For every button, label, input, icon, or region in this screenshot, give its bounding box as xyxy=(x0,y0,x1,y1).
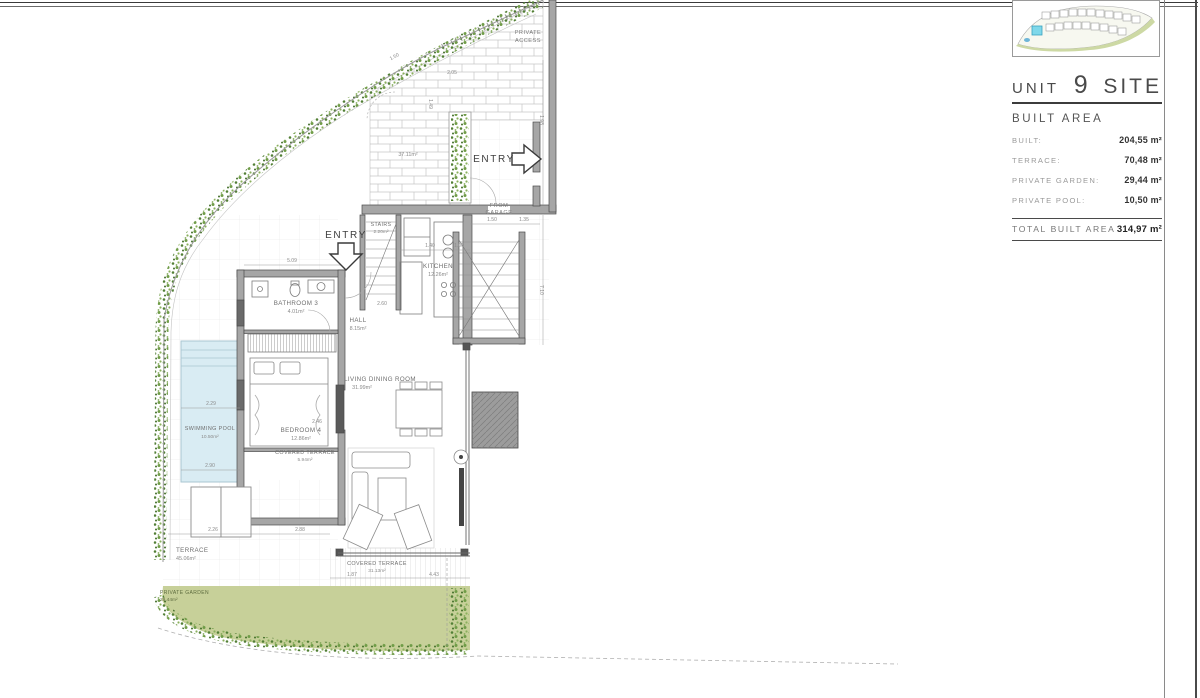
terrace-furniture xyxy=(191,487,251,537)
room-area-kitchen: 12.26m² xyxy=(428,272,448,278)
room-label-bathroom: BATHROOM 3 xyxy=(274,300,319,307)
room-label-hall: HALL xyxy=(349,317,366,324)
dim-5: 1.06 xyxy=(454,243,464,249)
row-value: 70,48 m² xyxy=(1124,155,1162,165)
dim-10: 2.26 xyxy=(208,527,218,533)
dim-14: 1.98 xyxy=(538,115,544,125)
room-area-covered-terrace-2: 31.13m² xyxy=(368,568,386,574)
room-label-bedroom: BEDROOM 4 xyxy=(281,427,322,434)
swimming-pool xyxy=(181,341,240,482)
room-label-pool: SWIMMING POOL xyxy=(185,426,235,432)
room-label-kitchen: KITCHEN xyxy=(423,263,453,270)
sheet-right-rule-outer xyxy=(1195,0,1197,698)
row-value: 10,50 m² xyxy=(1124,195,1162,205)
entry-label-main: ENTRY xyxy=(325,230,367,241)
total-value: 314,97 m² xyxy=(1117,224,1162,235)
drawing-sheet: PRIVATE ACCESS 37.11m² ENTRY ENTRY FROM … xyxy=(0,0,1200,698)
dim-12: 4.43 xyxy=(429,572,439,578)
site-thumbnail-unit9-highlight xyxy=(1032,26,1042,35)
site-thumbnail-drawing xyxy=(1012,0,1160,57)
from-garage-label2: GARAGE xyxy=(486,210,513,216)
dim-2: 1.49 xyxy=(427,99,433,109)
private-access-label2: ACCESS xyxy=(515,38,541,44)
total-label: TOTAL BUILT AREA xyxy=(1012,224,1115,234)
room-label-terrace: TERRACE xyxy=(176,547,208,554)
entry-label-garage: ENTRY xyxy=(473,154,515,165)
access-area-label: 37.11m² xyxy=(398,152,418,158)
unit-label: UNIT xyxy=(1012,80,1059,97)
legend-panel: UNIT 9 SITE BUILT AREA BUILT: 204,55 m² … xyxy=(1012,0,1162,241)
table-row: PRIVATE POOL: 10,50 m² xyxy=(1012,195,1162,205)
room-label-living: LIVING DINING ROOM xyxy=(344,376,416,383)
room-area-living: 31.99m² xyxy=(352,385,372,391)
room-label-covered-terrace-2: COVERED TERRACE xyxy=(347,561,407,567)
room-area-covered-terrace-1: 5.94m² xyxy=(298,457,313,463)
living-dining-furniture xyxy=(343,382,468,550)
site-location-thumbnail xyxy=(1012,0,1160,57)
room-area-pool: 10.50m² xyxy=(201,434,219,440)
built-area-table: BUILT: 204,55 m² TERRACE: 70,48 m² PRIVA… xyxy=(1012,135,1162,205)
row-label: TERRACE: xyxy=(1012,156,1061,165)
dim-7: 2.29 xyxy=(206,401,216,407)
from-garage-label: FROM xyxy=(490,203,508,209)
dim-13: 7.10 xyxy=(538,285,544,295)
dim-0: 1.50 xyxy=(389,52,401,62)
floor-plan-drawing: PRIVATE ACCESS 37.11m² ENTRY ENTRY FROM … xyxy=(0,0,1010,698)
built-area-heading: BUILT AREA xyxy=(1012,113,1162,125)
unit-title: UNIT 9 SITE xyxy=(1012,71,1162,104)
row-label: PRIVATE GARDEN: xyxy=(1012,176,1100,185)
bathroom-fittings xyxy=(252,280,334,297)
service-shaft xyxy=(472,392,518,448)
dim-3: 5.09 xyxy=(287,258,297,264)
wardrobe xyxy=(248,334,336,352)
dim-16: 1.50 xyxy=(487,217,497,223)
room-label-garden: PRIVATE GARDEN xyxy=(160,590,209,596)
sheet-right-rule-inner xyxy=(1164,0,1165,698)
site-thumbnail-pool-dot xyxy=(1024,38,1030,42)
private-access-label: PRIVATE xyxy=(515,30,542,36)
dim-9: 2.46 xyxy=(312,419,322,425)
dim-17: 2.88 xyxy=(295,527,305,533)
room-area-hall: 8.15m² xyxy=(350,326,367,332)
room-area-bathroom: 4.01m² xyxy=(288,309,305,315)
dim-11: 1.87 xyxy=(347,572,357,578)
row-value: 29,44 m² xyxy=(1124,175,1162,185)
unit-number: 9 xyxy=(1074,71,1089,100)
room-area-garden: 29.44m² xyxy=(160,597,178,603)
room-label-stairs: STAIRS xyxy=(371,222,392,228)
table-row: PRIVATE GARDEN: 29,44 m² xyxy=(1012,175,1162,185)
dim-6: 2.60 xyxy=(377,301,387,307)
planter xyxy=(449,112,471,203)
total-built-area-row: TOTAL BUILT AREA 314,97 m² xyxy=(1012,218,1162,241)
table-row: TERRACE: 70,48 m² xyxy=(1012,155,1162,165)
dim-15: 1.35 xyxy=(519,217,529,223)
table-row: BUILT: 204,55 m² xyxy=(1012,135,1162,145)
room-area-stairs: 2.20m² xyxy=(374,229,389,235)
room-label-covered-terrace-1: COVERED TERRACE xyxy=(275,450,335,456)
room-area-terrace: 45.06m² xyxy=(176,556,196,562)
row-label: PRIVATE POOL: xyxy=(1012,196,1086,205)
dim-4: 1.40 xyxy=(425,243,435,249)
row-value: 204,55 m² xyxy=(1119,135,1162,145)
site-label: SITE xyxy=(1103,75,1162,99)
dim-1: 2.05 xyxy=(447,70,457,76)
room-area-bedroom: 12.86m² xyxy=(291,436,311,442)
dim-8: 2.90 xyxy=(205,463,215,469)
row-label: BUILT: xyxy=(1012,136,1042,145)
